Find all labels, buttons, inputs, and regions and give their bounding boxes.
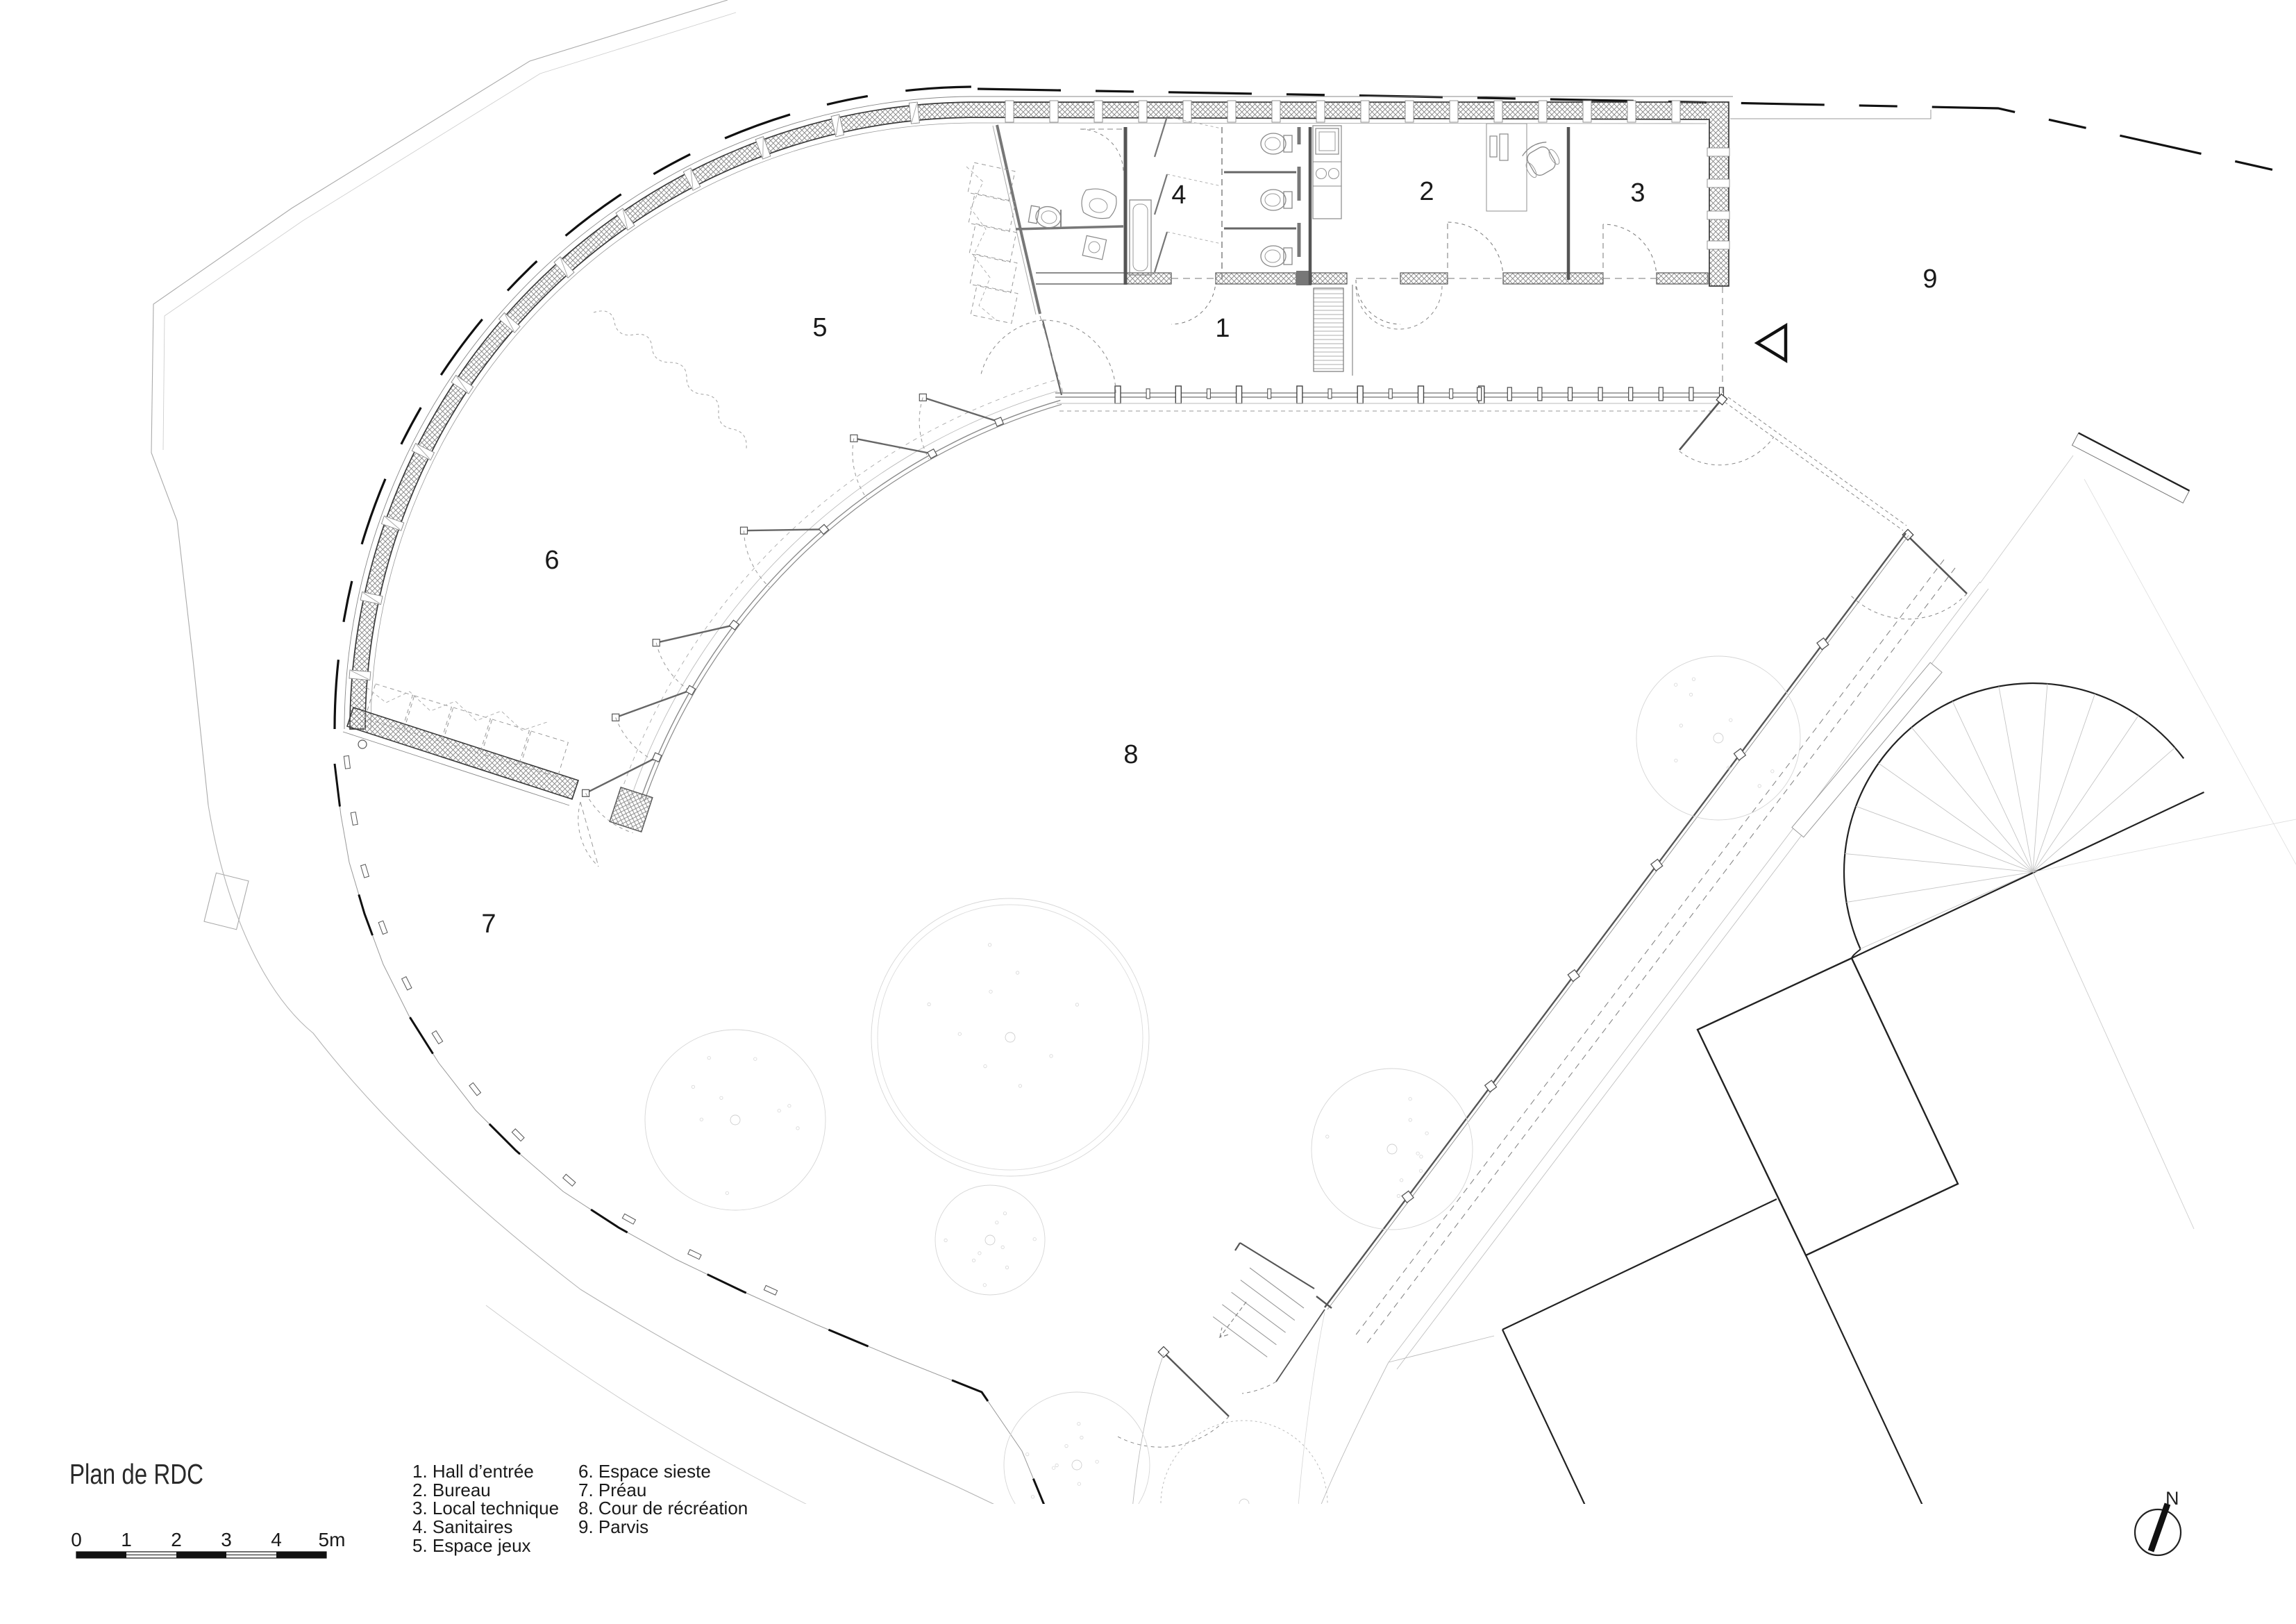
svg-text:6: 6: [544, 546, 559, 575]
svg-text:8. Cour de récréation: 8. Cour de récréation: [578, 1498, 748, 1518]
svg-text:6. Espace sieste: 6. Espace sieste: [578, 1461, 711, 1482]
svg-text:1: 1: [121, 1529, 132, 1550]
svg-text:2: 2: [171, 1529, 182, 1550]
svg-text:8: 8: [1123, 740, 1138, 769]
svg-text:5: 5: [812, 313, 827, 342]
svg-text:1: 1: [1215, 314, 1230, 343]
svg-text:4: 4: [1171, 181, 1186, 210]
svg-text:N: N: [2165, 1488, 2179, 1509]
svg-text:3. Local technique: 3. Local technique: [412, 1498, 559, 1518]
svg-text:1. Hall d’entrée: 1. Hall d’entrée: [412, 1461, 534, 1482]
svg-text:5m: 5m: [319, 1529, 346, 1550]
svg-text:7: 7: [481, 910, 496, 939]
svg-text:5. Espace jeux: 5. Espace jeux: [412, 1535, 531, 1556]
svg-text:Plan de RDC: Plan de RDC: [69, 1458, 203, 1490]
svg-text:0: 0: [71, 1529, 82, 1550]
svg-text:3: 3: [221, 1529, 232, 1550]
svg-text:9. Parvis: 9. Parvis: [578, 1516, 648, 1537]
svg-text:4. Sanitaires: 4. Sanitaires: [412, 1516, 513, 1537]
svg-text:3: 3: [1630, 178, 1645, 208]
svg-text:9: 9: [1922, 265, 1937, 294]
svg-text:4: 4: [271, 1529, 282, 1550]
svg-text:2: 2: [1419, 177, 1434, 206]
